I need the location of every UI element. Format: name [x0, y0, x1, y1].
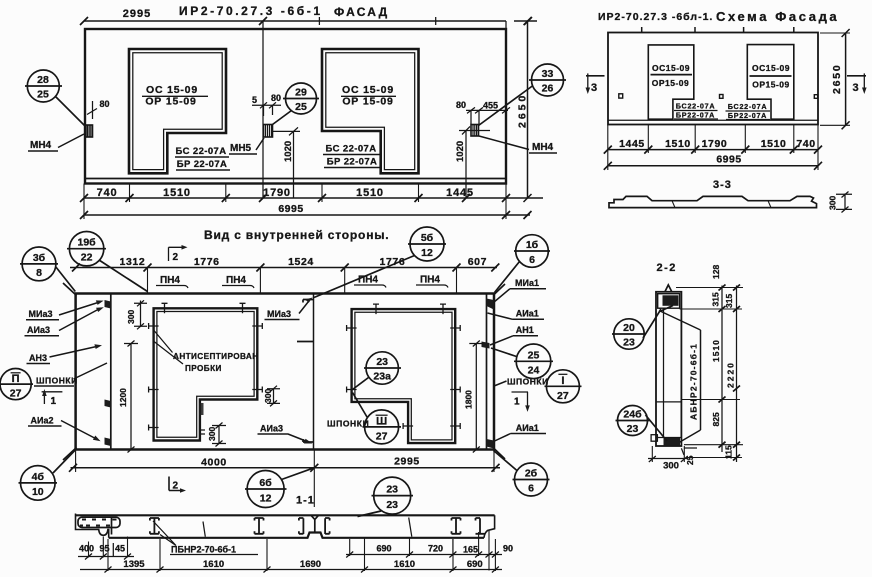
- svg-text:Схема Фасада: Схема Фасада: [716, 9, 839, 24]
- svg-text:740: 740: [97, 187, 118, 199]
- svg-text:690: 690: [467, 559, 483, 570]
- svg-text:АИа3: АИа3: [260, 424, 283, 434]
- svg-text:22: 22: [81, 252, 93, 264]
- svg-text:ИР2-70.27.3 -6б-1: ИР2-70.27.3 -6б-1: [179, 4, 323, 18]
- svg-text:МИа1: МИа1: [515, 278, 539, 288]
- svg-text:315: 315: [711, 292, 721, 306]
- svg-text:2-2: 2-2: [657, 262, 677, 274]
- svg-text:2: 2: [173, 252, 179, 263]
- svg-text:БР22-07А: БР22-07А: [676, 111, 715, 120]
- svg-text:1445: 1445: [446, 187, 474, 199]
- svg-text:ОР 15-09: ОР 15-09: [342, 96, 393, 108]
- svg-text:БС 22-07А: БС 22-07А: [176, 146, 227, 157]
- svg-text:24: 24: [528, 364, 540, 376]
- svg-text:2б: 2б: [525, 468, 538, 480]
- svg-text:МН5: МН5: [230, 143, 252, 154]
- svg-text:ОС 15-09: ОС 15-09: [342, 84, 394, 96]
- svg-text:825: 825: [711, 412, 721, 426]
- svg-text:23: 23: [386, 484, 398, 496]
- svg-text:300: 300: [207, 427, 217, 441]
- svg-text:720: 720: [428, 544, 443, 554]
- svg-text:1524: 1524: [288, 256, 314, 268]
- svg-text:АИа1: АИа1: [516, 309, 539, 319]
- svg-text:4000: 4000: [201, 457, 227, 469]
- svg-text:БС22-07А: БС22-07А: [676, 102, 715, 111]
- svg-text:АН3: АН3: [29, 353, 47, 363]
- svg-text:27: 27: [10, 388, 22, 400]
- svg-text:ОС15-09: ОС15-09: [652, 63, 690, 73]
- svg-text:БР 22-07А: БР 22-07А: [327, 157, 378, 168]
- svg-text:ОС15-09: ОС15-09: [752, 63, 790, 73]
- svg-text:МН4: МН4: [532, 142, 554, 153]
- svg-text:29: 29: [295, 87, 307, 99]
- svg-text:1200: 1200: [118, 388, 128, 407]
- svg-text:23а: 23а: [373, 371, 391, 383]
- svg-text:23: 23: [376, 356, 388, 368]
- svg-text:1510: 1510: [711, 339, 721, 362]
- svg-text:3: 3: [853, 82, 859, 94]
- svg-text:19б: 19б: [78, 237, 97, 249]
- svg-text:ПН4: ПН4: [420, 275, 440, 286]
- svg-text:ПБНР2-70-6б-1: ПБНР2-70-6б-1: [171, 545, 236, 555]
- svg-text:12: 12: [260, 493, 272, 505]
- svg-text:БС22-07А: БС22-07А: [728, 102, 767, 111]
- svg-text:300: 300: [663, 461, 679, 472]
- svg-text:АН1: АН1: [516, 325, 534, 335]
- svg-text:6: 6: [529, 254, 535, 266]
- svg-text:БР22-07А: БР22-07А: [728, 111, 767, 120]
- svg-text:ПН4: ПН4: [160, 275, 180, 286]
- svg-text:3-3: 3-3: [713, 179, 732, 191]
- svg-text:33: 33: [542, 68, 554, 80]
- svg-text:115: 115: [724, 445, 734, 459]
- svg-text:6: 6: [528, 483, 534, 495]
- svg-text:23: 23: [386, 499, 398, 511]
- svg-text:ОР15-09: ОР15-09: [752, 80, 790, 90]
- svg-text:12: 12: [421, 247, 433, 259]
- svg-text:1510: 1510: [761, 138, 787, 150]
- svg-text:1790: 1790: [263, 187, 291, 199]
- svg-text:8: 8: [36, 267, 42, 279]
- svg-text:90: 90: [503, 544, 513, 554]
- svg-text:I: I: [561, 375, 564, 387]
- svg-text:1: 1: [51, 396, 57, 407]
- svg-text:1: 1: [514, 397, 520, 408]
- svg-text:БС 22-07А: БС 22-07А: [326, 144, 377, 155]
- svg-text:3б: 3б: [33, 252, 46, 264]
- svg-text:45: 45: [115, 544, 125, 554]
- svg-text:1610: 1610: [394, 559, 415, 570]
- svg-text:80: 80: [100, 99, 110, 109]
- svg-text:6б: 6б: [259, 477, 272, 489]
- svg-text:25: 25: [295, 101, 307, 113]
- svg-text:165: 165: [463, 545, 478, 555]
- svg-text:Вид с внутренней стороны.: Вид с внутренней стороны.: [204, 228, 389, 242]
- svg-text:3: 3: [591, 82, 597, 94]
- svg-text:2995: 2995: [123, 8, 151, 20]
- svg-text:1510: 1510: [356, 187, 384, 199]
- svg-text:740: 740: [796, 138, 815, 150]
- svg-text:1312: 1312: [120, 256, 146, 268]
- svg-text:1020: 1020: [455, 141, 466, 162]
- svg-text:МН4: МН4: [30, 140, 52, 151]
- svg-text:2995: 2995: [394, 456, 420, 468]
- svg-text:1-1: 1-1: [296, 495, 315, 507]
- svg-text:300: 300: [263, 389, 273, 403]
- svg-text:24б: 24б: [623, 409, 642, 421]
- svg-text:690: 690: [376, 544, 391, 554]
- svg-text:ОР15-09: ОР15-09: [652, 78, 690, 88]
- svg-text:МИа3: МИа3: [267, 309, 291, 319]
- svg-text:1395: 1395: [123, 559, 145, 570]
- svg-text:23: 23: [627, 423, 639, 435]
- svg-text:300: 300: [126, 310, 136, 324]
- svg-text:80: 80: [456, 100, 466, 110]
- svg-text:27: 27: [557, 390, 569, 402]
- svg-text:27: 27: [376, 431, 388, 443]
- svg-text:128: 128: [711, 265, 721, 279]
- svg-text:АИа2: АИа2: [31, 416, 54, 426]
- svg-text:315: 315: [724, 294, 734, 308]
- svg-text:ПН4: ПН4: [226, 275, 246, 286]
- svg-text:400: 400: [79, 544, 94, 554]
- svg-text:ПРОБКИ: ПРОБКИ: [185, 364, 222, 373]
- svg-text:1445: 1445: [619, 138, 645, 150]
- svg-text:6995: 6995: [716, 154, 741, 166]
- svg-text:АНТИСЕПТИРОВАН: АНТИСЕПТИРОВАН: [173, 352, 259, 361]
- svg-text:ИР2-70.27.3 -6бл-1.: ИР2-70.27.3 -6бл-1.: [598, 11, 713, 23]
- svg-text:ШПОНКИ: ШПОНКИ: [507, 377, 549, 387]
- svg-text:ПН4: ПН4: [358, 275, 378, 286]
- svg-text:28: 28: [37, 74, 49, 86]
- svg-text:5б: 5б: [421, 232, 434, 244]
- svg-text:1510: 1510: [665, 138, 691, 150]
- svg-text:1776: 1776: [380, 256, 406, 268]
- svg-text:Ш: Ш: [376, 416, 387, 428]
- svg-text:П: П: [12, 373, 20, 385]
- svg-text:10: 10: [32, 486, 44, 498]
- svg-text:ФАСАД: ФАСАД: [334, 5, 389, 19]
- svg-text:1610: 1610: [203, 559, 224, 570]
- svg-text:ОС 15-09: ОС 15-09: [146, 84, 198, 96]
- svg-text:2220: 2220: [726, 361, 736, 388]
- svg-text:607: 607: [468, 256, 487, 268]
- svg-text:1020: 1020: [283, 141, 294, 162]
- svg-text:80: 80: [271, 93, 281, 103]
- svg-text:2: 2: [173, 481, 179, 492]
- svg-text:1800: 1800: [464, 390, 474, 409]
- svg-text:20: 20: [623, 322, 635, 334]
- svg-text:ШПОНКИ: ШПОНКИ: [36, 376, 78, 386]
- svg-text:5: 5: [252, 95, 257, 105]
- svg-text:455: 455: [483, 101, 498, 111]
- svg-text:2650: 2650: [831, 63, 843, 94]
- svg-text:26: 26: [542, 83, 554, 95]
- svg-text:1790: 1790: [702, 138, 728, 150]
- svg-text:6995: 6995: [278, 203, 303, 215]
- svg-text:300: 300: [828, 196, 838, 210]
- svg-text:2650: 2650: [517, 93, 529, 128]
- svg-text:4б: 4б: [32, 471, 45, 483]
- svg-text:1776: 1776: [194, 256, 220, 268]
- svg-text:1б: 1б: [526, 239, 539, 251]
- svg-text:МИа3: МИа3: [29, 309, 53, 319]
- svg-text:25: 25: [37, 89, 49, 101]
- svg-text:1690: 1690: [300, 559, 321, 570]
- svg-text:БР 22-07А: БР 22-07А: [177, 159, 228, 170]
- svg-text:25: 25: [528, 349, 540, 361]
- svg-text:1510: 1510: [163, 187, 191, 199]
- svg-text:23: 23: [623, 337, 635, 349]
- svg-text:АБНР2-70-6б-1: АБНР2-70-6б-1: [689, 343, 699, 420]
- svg-text:АИа3: АИа3: [27, 325, 50, 335]
- svg-text:ОР 15-09: ОР 15-09: [145, 96, 196, 108]
- svg-text:АИа1: АИа1: [516, 423, 539, 433]
